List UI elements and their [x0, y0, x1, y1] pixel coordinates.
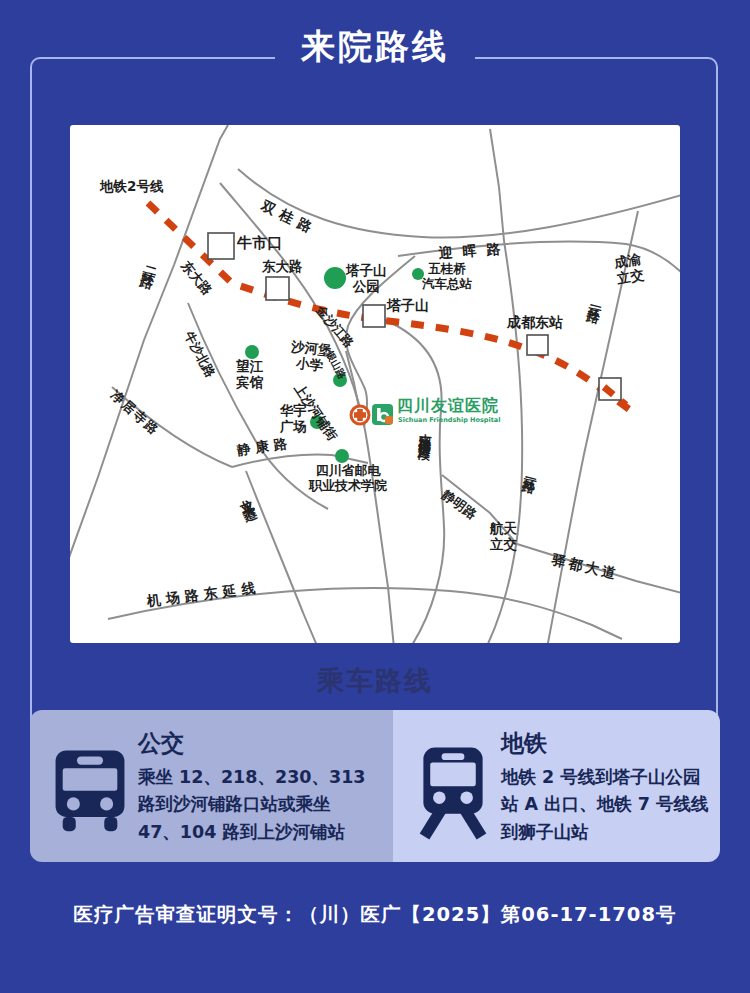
label-wangjiang-hotel: 望江 宾馆	[236, 359, 263, 391]
route-poster: 来院路线	[0, 0, 750, 993]
label-tazishan-station: 塔子山	[387, 297, 429, 314]
road-east-station	[486, 241, 522, 643]
label-hangtian-interchange: 航天 立交	[490, 521, 517, 553]
hospital-name: 四川友谊医院	[397, 396, 499, 417]
train-front-icon	[412, 742, 494, 842]
bus-card: 公交 乘坐 12、218、230、313 路到沙河铺路口站或乘坐 47、104 …	[30, 710, 393, 862]
train-icon-wrap	[411, 722, 495, 862]
hospital-name-en: Sichuan Friendship Hospital	[398, 416, 500, 424]
license-text: 医疗广告审查证明文号：（川）医广【2025】第06-17-1708号	[0, 901, 750, 928]
label-zhonghuan-section: 中环路锦绣大道段	[418, 423, 434, 440]
chengdu-east-station-marker	[527, 335, 548, 355]
college-dot	[335, 449, 349, 463]
page-title: 来院路线	[275, 24, 475, 70]
bus-icon-wrap	[48, 722, 132, 862]
tazishan-station-marker	[363, 305, 385, 327]
label-tazishan-park: 塔子山 公园	[346, 263, 387, 295]
label-wuguiqiao-terminal: 五桂桥 汽车总站	[422, 262, 472, 292]
metro-card-text: 地铁 地铁 2 号线到塔子山公园站 A 出口、地铁 7 号线线到狮子山站	[501, 722, 716, 862]
road-yinshan	[346, 351, 360, 413]
label-post-telecom-college: 四川省邮电 职业技术学院	[303, 463, 393, 494]
bus-front-icon	[52, 746, 128, 838]
wangjiang-hotel-dot	[245, 345, 259, 359]
transit-heading: 乘车路线	[0, 663, 750, 699]
hospital-marker	[351, 404, 393, 425]
niushikou-station-marker	[208, 233, 234, 259]
road-connector-top	[490, 129, 504, 241]
bus-card-title: 公交	[138, 728, 378, 759]
dongda-station-marker	[266, 277, 289, 300]
metro-card: 地铁 地铁 2 号线到塔子山公园站 A 出口、地铁 7 号线线到狮子山站	[393, 710, 720, 862]
tazishan-park-dot	[324, 267, 346, 289]
label-niushikou: 牛市口	[237, 235, 282, 253]
metro-card-desc: 地铁 2 号线到塔子山公园站 A 出口、地铁 7 号线线到狮子山站	[501, 764, 716, 846]
bus-card-text: 公交 乘坐 12、218、230、313 路到沙河铺路口站或乘坐 47、104 …	[138, 722, 378, 862]
metro-card-title: 地铁	[501, 728, 716, 759]
hospital-logo-orange	[385, 416, 393, 424]
label-chengdu-east-station: 成都东站	[507, 314, 563, 331]
label-chengyu-interchange: 成渝 立交	[613, 251, 645, 287]
label-dongda-road: 东大路	[262, 259, 303, 275]
transit-cards: 公交 乘坐 12、218、230、313 路到沙河铺路口站或乘坐 47、104 …	[30, 710, 720, 862]
hospital-cross-v	[357, 409, 363, 421]
bus-card-desc: 乘坐 12、218、230、313 路到沙河铺路口站或乘坐 47、104 路到上…	[138, 764, 378, 846]
label-huayu-plaza: 华宇 广场	[280, 403, 307, 435]
hospital-map: 地铁2号线 双桂路 牛市口 迎晖路 成渝 立交 二环路 东大路 东大路 塔子山 …	[70, 125, 680, 643]
road-zhonghuan	[385, 320, 444, 643]
page-title-row: 来院路线	[0, 24, 750, 70]
label-metro-line-2: 地铁2号线	[100, 179, 163, 195]
